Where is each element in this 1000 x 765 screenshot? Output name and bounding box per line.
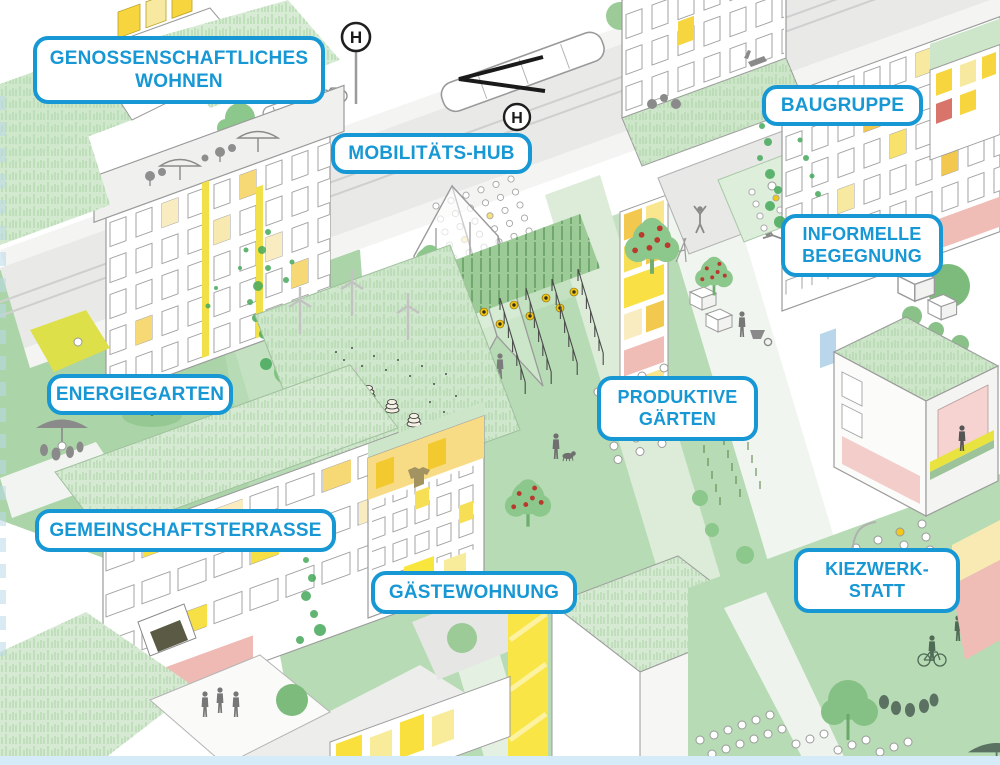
callout-mobilitaets-hub: MOBILITÄTS-HUB (331, 133, 532, 174)
bottom-edge-strip (0, 756, 1000, 765)
callout-label: INFORMELLE BEGEGNUNG (802, 224, 922, 268)
kiez-illustration-page: H H GENOSSENSCHAFTLICHES WOHNEN MOBILITÄ… (0, 0, 1000, 765)
callout-produktive-gaerten: PRODUKTIVE GÄRTEN (597, 376, 758, 441)
callout-baugruppe: BAUGRUPPE (762, 85, 923, 126)
callout-label: ENERGIEGARTEN (56, 383, 224, 406)
callout-gemeinschaftsterrasse: GEMEINSCHAFTSTERRASSE (35, 509, 336, 552)
callout-label: GÄSTEWOHNUNG (389, 581, 559, 604)
tram-stop-icon: H (350, 28, 362, 47)
callout-label: GEMEINSCHAFTSTERRASSE (49, 519, 321, 542)
callout-kiezwerkstatt: KIEZWERK- STATT (794, 548, 960, 613)
tram-stop-icon: H (511, 110, 523, 127)
callout-label: BAUGRUPPE (781, 94, 904, 117)
callout-informelle-begegnung: INFORMELLE BEGEGNUNG (781, 214, 943, 277)
callout-energiegarten: ENERGIEGARTEN (47, 374, 233, 415)
callout-label: GENOSSENSCHAFTLICHES WOHNEN (50, 47, 308, 93)
callout-label: PRODUKTIVE GÄRTEN (617, 387, 737, 431)
callout-gaestewohnung: GÄSTEWOHNUNG (371, 571, 577, 614)
callout-genossenschaftliches-wohnen: GENOSSENSCHAFTLICHES WOHNEN (33, 36, 325, 104)
callout-label: MOBILITÄTS-HUB (348, 142, 514, 165)
tram-stop-sign: H (504, 104, 530, 130)
callout-label: KIEZWERK- STATT (825, 559, 929, 603)
